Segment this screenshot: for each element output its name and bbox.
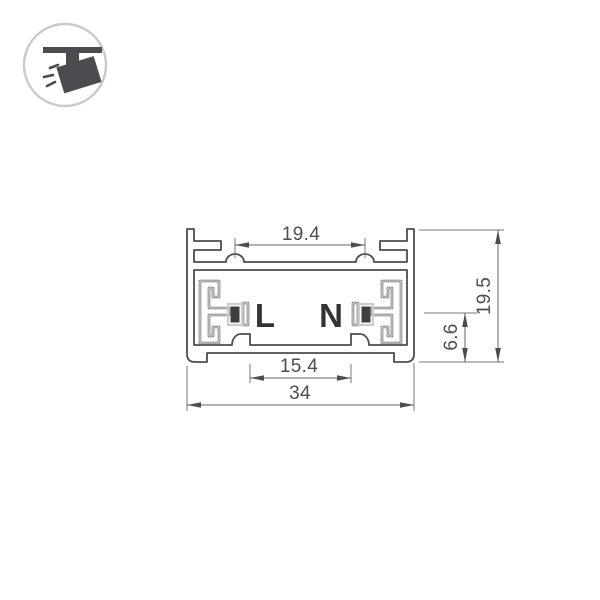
- dim-overall-width-value: 34: [289, 383, 311, 404]
- logo: [24, 24, 106, 106]
- dimension-conductor-height: 6.6: [424, 313, 478, 362]
- profile-cross-section: [187, 229, 414, 362]
- profile-outer-contour: [187, 229, 414, 362]
- technical-drawing: L N 19.4 15.4 34 19.5: [0, 0, 600, 600]
- neutral-conductor-label: N: [319, 297, 343, 334]
- dim-top-inner-width-value: 19.4: [282, 224, 320, 245]
- dimension-top-inner-width: 19.4: [235, 224, 365, 258]
- dimension-bottom-inner-width: 15.4: [250, 356, 351, 383]
- live-conductor-label: L: [255, 297, 275, 334]
- dim-bottom-inner-width-value: 15.4: [280, 356, 318, 377]
- dim-conductor-height-value: 6.6: [441, 323, 462, 350]
- drawing-page: L N 19.4 15.4 34 19.5: [0, 0, 600, 600]
- dim-overall-height-value: 19.5: [474, 277, 495, 315]
